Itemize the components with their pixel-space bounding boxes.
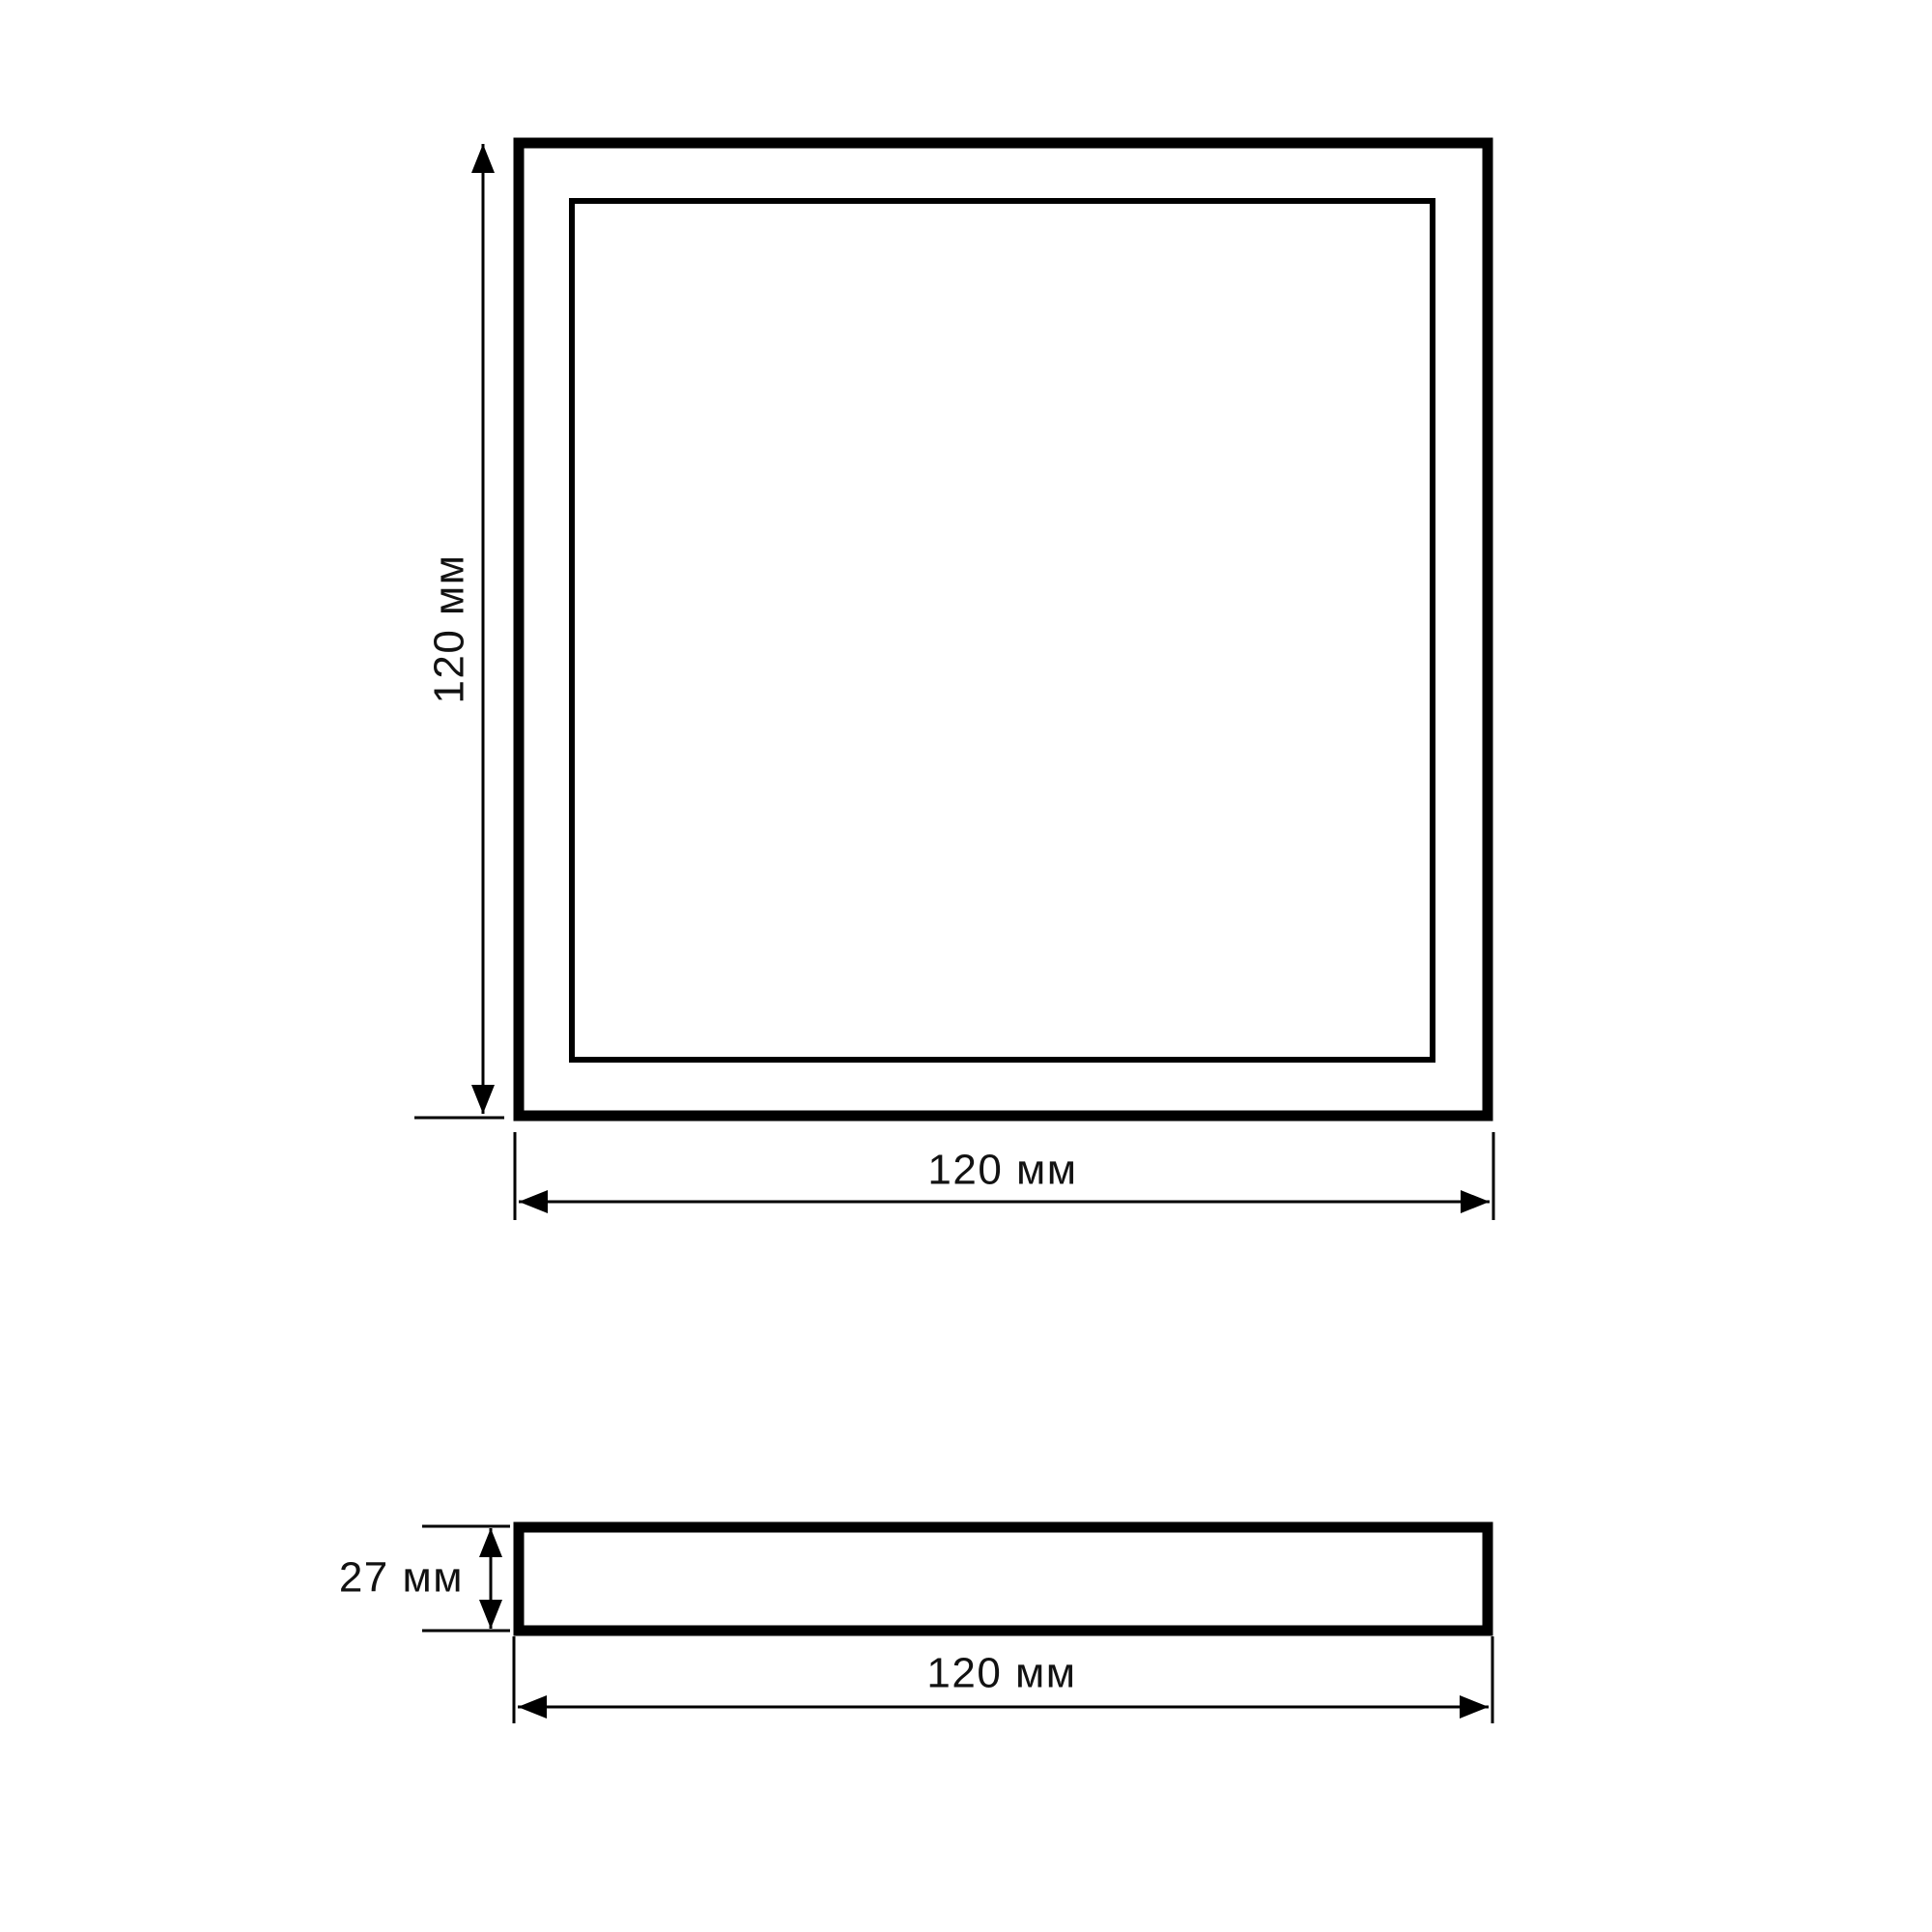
top-view: 120 мм 120 мм [414, 143, 1493, 1220]
top-view-height-label: 120 мм [426, 554, 473, 703]
side-view: 27 мм 120 мм [339, 1526, 1492, 1723]
side-view-width-label: 120 мм [926, 1650, 1076, 1697]
top-view-width-label: 120 мм [927, 1147, 1077, 1194]
dimension-drawing: 120 мм 120 мм 27 мм 120 мм [0, 0, 1932, 1932]
top-view-inner-panel [572, 201, 1433, 1060]
side-view-height-label: 27 мм [339, 1554, 464, 1602]
side-view-profile [519, 1527, 1488, 1631]
drawing-canvas: 120 мм 120 мм 27 мм 120 мм [0, 0, 1932, 1932]
top-view-outer-frame [519, 143, 1488, 1116]
